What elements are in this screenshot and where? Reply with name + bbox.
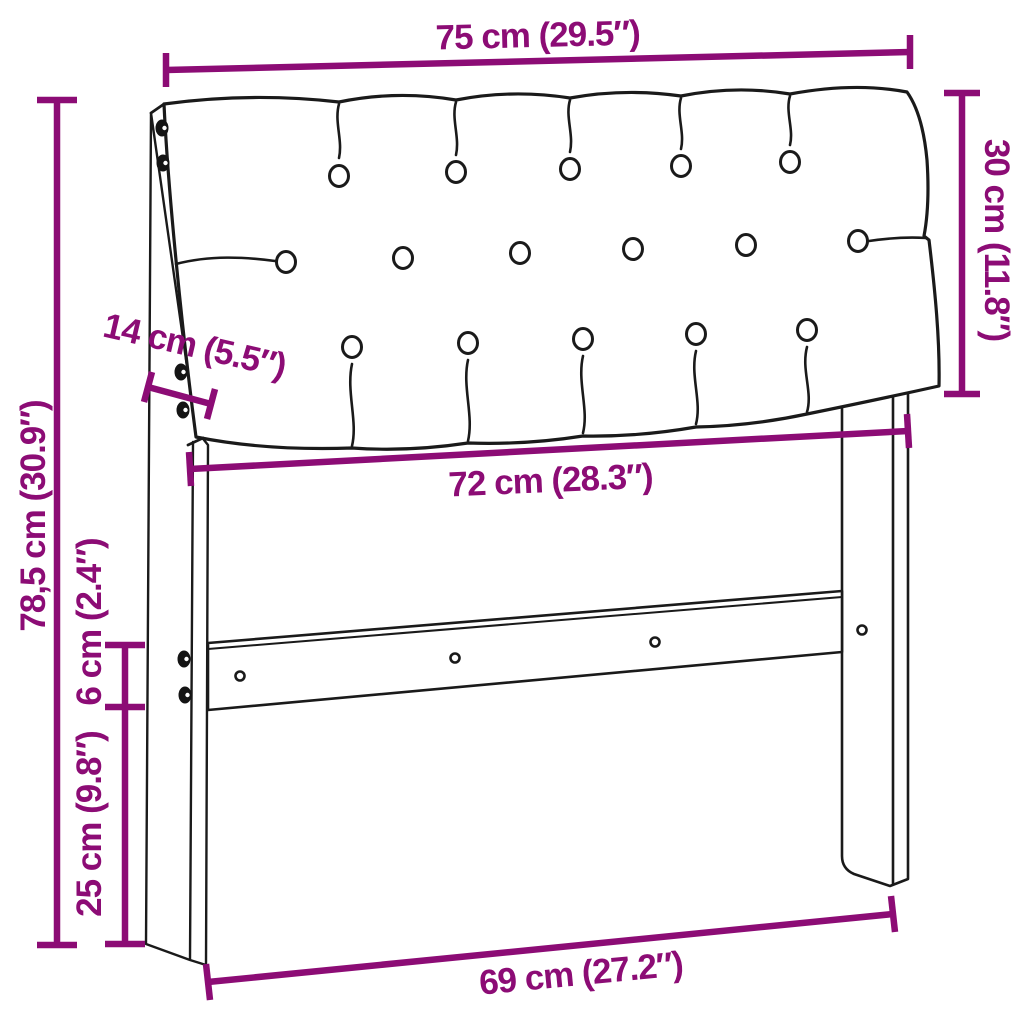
diagram-canvas: 75 cm (29.5″) 30 cm (11.8″) 14 cm (5.5″)… <box>0 0 1024 1024</box>
dim-cushion-height-label: 30 cm (11.8″) <box>977 139 1016 341</box>
button <box>624 239 643 260</box>
cross-rail <box>208 591 842 710</box>
screw-hole <box>451 654 460 663</box>
dim-rail-height-label: 6 cm (2.4″) <box>70 538 109 705</box>
button <box>343 337 362 358</box>
dim-leg-height <box>105 707 145 944</box>
screw <box>157 155 170 172</box>
screw-hole <box>651 638 660 647</box>
headboard-drawing <box>146 87 939 965</box>
dim-inner-width-label: 72 cm (28.3″) <box>448 457 654 505</box>
dim-cushion-height <box>944 93 980 394</box>
dim-rail-height <box>105 645 145 707</box>
button <box>277 252 296 273</box>
button <box>574 329 593 350</box>
cushion-top-left-corner <box>151 104 164 113</box>
dim-total-height-label: 78,5 cm (30.9″) <box>14 400 53 631</box>
headboard-dimension-diagram: 75 cm (29.5″) 30 cm (11.8″) 14 cm (5.5″)… <box>0 0 1024 1024</box>
button <box>511 243 530 264</box>
screw <box>178 651 191 668</box>
screw <box>156 120 169 137</box>
button <box>561 159 580 180</box>
button <box>447 162 466 183</box>
screw-hole <box>236 672 245 681</box>
button <box>849 231 868 252</box>
button <box>737 235 756 256</box>
button <box>330 166 349 187</box>
button <box>781 152 800 173</box>
button <box>394 248 413 269</box>
right-post <box>842 389 908 886</box>
screw <box>179 687 192 704</box>
screw-hole <box>858 626 867 635</box>
screw <box>175 364 188 381</box>
dim-leg-height-label: 25 cm (9.8″) <box>70 731 109 917</box>
button <box>672 156 691 177</box>
button <box>459 333 478 354</box>
screw <box>177 402 190 419</box>
button <box>687 324 706 345</box>
button <box>798 320 817 341</box>
dim-top-width-label: 75 cm (29.5″) <box>435 14 640 58</box>
